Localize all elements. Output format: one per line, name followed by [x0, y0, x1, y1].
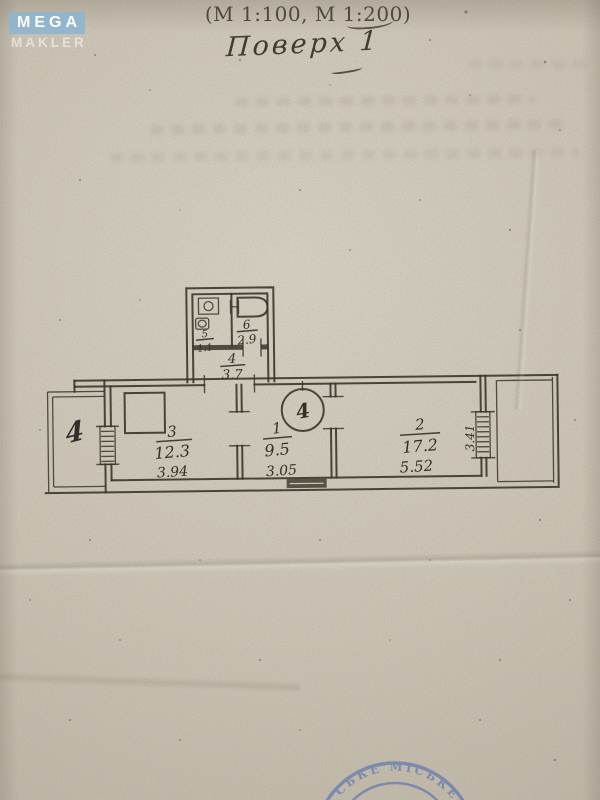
room3-dimension: 3.94	[156, 464, 188, 482]
watermark-logo: MEGA MAKLER	[9, 12, 87, 50]
boxed-mark-number: 4	[64, 414, 85, 451]
room1-area: 9.5	[264, 439, 291, 460]
room3-number: 3	[166, 422, 177, 441]
balcony-width-label: 3.41	[463, 424, 477, 451]
watermark-mega-label: MEGA	[9, 12, 85, 34]
scanned-floor-plan-page: MEGA MAKLER (М 1:100, М 1:200) Поверх 1	[0, 0, 600, 800]
room2-number: 2	[413, 415, 425, 434]
room3-area: 12.3	[154, 441, 191, 463]
room1-dimension: 3.05	[265, 462, 297, 480]
watermark-makler-label: MAKLER	[9, 35, 87, 50]
room4-number: 4	[227, 352, 236, 367]
room1-number: 1	[271, 419, 282, 438]
room2-dimension: 5.52	[399, 457, 433, 477]
room6-area: 2.9	[236, 332, 258, 348]
room5-area: 1.1	[197, 342, 214, 355]
floor-plan-drawing: 5 1.1 6 2.9 4 3.7	[0, 0, 600, 800]
radiator-icon	[287, 479, 327, 488]
room2-area: 17.2	[402, 435, 439, 457]
room4-area: 3.7	[222, 368, 244, 383]
